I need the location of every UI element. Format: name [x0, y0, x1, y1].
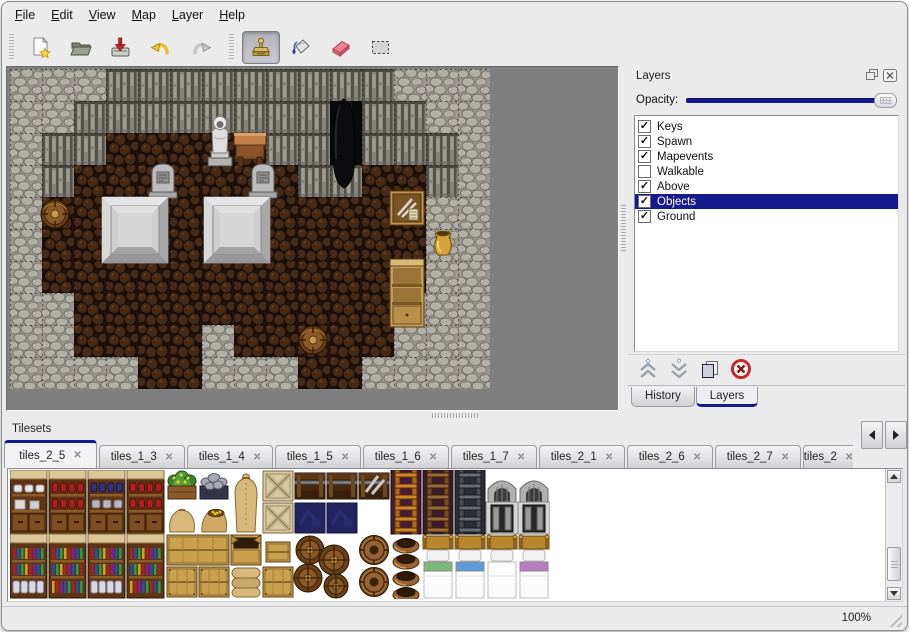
status-bar: 100% — [2, 606, 907, 631]
tileset-tile-navy-tile[interactable] — [327, 503, 357, 533]
layer-checkbox[interactable]: ✓ — [638, 150, 651, 163]
layers-panel: Layers Opacity: ✓Keys✓Spawn✓MapeventsWal… — [628, 66, 905, 411]
tilesets-panel-title: Tilesets — [12, 423, 51, 435]
tileset-tab-tiles_1_7[interactable]: tiles_1_7✕ — [451, 445, 537, 468]
map-object-shelf — [390, 259, 424, 327]
close-tab-icon[interactable]: ✕ — [73, 450, 81, 461]
tileset-canvas[interactable] — [10, 470, 550, 599]
layer-checkbox[interactable]: ✓ — [638, 210, 651, 223]
close-tab-icon[interactable]: ✕ — [693, 452, 701, 463]
layer-label: Objects — [657, 196, 696, 208]
layer-row-keys[interactable]: ✓Keys — [635, 119, 898, 134]
tileset-tab-label: tiles_1_3 — [111, 451, 157, 463]
tileset-tile-crate-tan[interactable] — [167, 567, 197, 597]
tilesets-panel: Tilesets tiles_2_5✕tiles_1_3✕tiles_1_4✕t… — [4, 419, 908, 606]
tileset-tile-sack-pile[interactable] — [232, 568, 260, 597]
rect-select-icon — [368, 35, 394, 61]
tileset-tab-tiles_1_3[interactable]: tiles_1_3✕ — [99, 445, 185, 468]
eraser-icon — [328, 35, 354, 61]
tileset-content[interactable] — [7, 468, 903, 602]
tileset-tile-shelf-bottle[interactable] — [127, 534, 164, 598]
app-window: FileEditViewMapLayerHelp — [1, 1, 908, 631]
tab-scroll-buttons — [859, 421, 907, 449]
tileset-tab-bar: tiles_2_5✕tiles_1_3✕tiles_1_4✕tiles_1_5✕… — [4, 440, 908, 468]
map-canvas[interactable] — [10, 69, 490, 389]
layers-panel-title: Layers — [636, 70, 671, 82]
map-object-tombstone — [149, 164, 177, 198]
close-tab-icon[interactable]: ✕ — [253, 452, 261, 463]
menu-layer[interactable]: Layer — [165, 8, 210, 22]
tileset-tile-shelf-bottle[interactable] — [10, 534, 47, 598]
triangle-right-icon — [893, 430, 899, 440]
layer-checkbox[interactable]: ✓ — [638, 120, 651, 133]
menu-file[interactable]: File — [8, 8, 42, 22]
float-panel-icon[interactable] — [865, 69, 879, 82]
map-viewport[interactable] — [6, 66, 619, 411]
tileset-tile-chest-dark[interactable] — [327, 473, 357, 499]
tileset-tile-bed[interactable] — [487, 535, 517, 598]
tileset-tab-tiles_2_5[interactable]: tiles_2_5✕ — [4, 440, 97, 468]
fill-tool-button[interactable] — [282, 31, 320, 64]
tileset-tile-crate-x[interactable] — [263, 503, 293, 533]
tileset-tile-planter[interactable] — [200, 474, 228, 500]
redo-icon — [188, 35, 214, 61]
tileset-tile-sack-tall[interactable] — [235, 474, 257, 532]
tileset-tab-tiles_1_4[interactable]: tiles_1_4✕ — [187, 445, 273, 468]
tileset-tab-label: tiles_1_7 — [463, 451, 509, 463]
scroll-tabs-right-button[interactable] — [885, 421, 907, 449]
toolbar-grip[interactable] — [229, 34, 234, 61]
tileset-tile-shelf-dish[interactable] — [49, 470, 86, 534]
tileset-tile-planter[interactable] — [168, 471, 196, 499]
tileset-tile-bed[interactable] — [519, 535, 549, 598]
tileset-tab-tiles_1_6[interactable]: tiles_1_6✕ — [363, 445, 449, 468]
tileset-tab-label: tiles_2_7 — [727, 451, 773, 463]
tileset-tile-shelf-bottle[interactable] — [49, 534, 86, 598]
layer-row-ground[interactable]: ✓Ground — [635, 209, 898, 224]
layer-checkbox[interactable] — [638, 165, 651, 178]
map-object-platform — [102, 197, 168, 263]
close-tab-icon[interactable]: ✕ — [781, 452, 789, 463]
delete-red-x-icon — [729, 357, 753, 381]
tileset-tab-label: tiles_2_1 — [551, 451, 597, 463]
tileset-tile-shelf-bottle[interactable] — [88, 534, 125, 598]
new-file-icon — [28, 35, 54, 61]
tileset-tab-label: tiles_1_5 — [287, 451, 333, 463]
chevron-double-down-icon — [667, 357, 691, 381]
layer-checkbox[interactable]: ✓ — [638, 195, 651, 208]
tileset-tile-chest-dark[interactable] — [359, 473, 389, 499]
undo-button[interactable] — [142, 31, 180, 64]
layer-row-spawn[interactable]: ✓Spawn — [635, 134, 898, 149]
dock-tab-layers[interactable]: Layers — [696, 387, 759, 407]
tileset-tile-sack-open[interactable] — [202, 509, 227, 532]
layer-row-above[interactable]: ✓Above — [635, 179, 898, 194]
duplicate-layer-button[interactable] — [698, 357, 722, 381]
resize-grip[interactable] — [885, 610, 902, 627]
tileset-tile-crate-x[interactable] — [263, 471, 293, 501]
tileset-tile-barrel-big[interactable] — [360, 536, 389, 565]
scroll-up-button[interactable] — [887, 470, 901, 483]
tileset-tab-tiles_2_7[interactable]: tiles_2_7✕ — [715, 445, 801, 468]
map-object-barrel — [299, 326, 327, 354]
tileset-tab-tiles_2[interactable]: tiles_2✕ — [803, 445, 853, 468]
toolbar-grip[interactable] — [9, 34, 14, 61]
tilesets-panel-titlebar: Tilesets — [4, 419, 908, 440]
layer-label: Ground — [657, 211, 695, 223]
map-object-barrel — [41, 200, 69, 228]
chevron-double-up-icon — [636, 357, 660, 381]
horizontal-splitter[interactable] — [2, 411, 907, 419]
tileset-tile-shelf-dish[interactable] — [127, 470, 164, 534]
tileset-tab-label: tiles_1_4 — [199, 451, 245, 463]
layer-checkbox[interactable]: ✓ — [638, 180, 651, 193]
toolbar — [2, 29, 907, 66]
zoom-level: 100% — [842, 612, 871, 624]
tileset-tile-crate-small[interactable] — [266, 542, 290, 562]
tileset-tile-shelf-dish[interactable] — [88, 470, 125, 534]
fill-bucket-icon — [288, 35, 314, 61]
layers-panel-titlebar: Layers — [628, 66, 905, 87]
close-tab-icon[interactable]: ✕ — [845, 452, 853, 463]
layer-row-mapevents[interactable]: ✓Mapevents — [635, 149, 898, 164]
tileset-tile-crate-long[interactable] — [167, 535, 229, 565]
undo-icon — [148, 35, 174, 61]
splitter-grip[interactable] — [621, 205, 626, 253]
opacity-row: Opacity: — [628, 90, 905, 110]
tileset-tile-arch[interactable] — [486, 481, 518, 534]
vertical-splitter[interactable] — [620, 66, 628, 411]
menu-edit[interactable]: Edit — [44, 8, 80, 22]
tileset-tab-label: tiles_2_6 — [639, 451, 685, 463]
layer-checkbox[interactable]: ✓ — [638, 135, 651, 148]
tileset-tile-crate-open[interactable] — [231, 535, 261, 565]
triangle-left-icon — [869, 430, 875, 440]
layer-label: Mapevents — [657, 151, 713, 163]
tileset-tile-crate-tan[interactable] — [263, 567, 293, 597]
dock-tab-history[interactable]: History — [631, 387, 695, 407]
tileset-tile-pots[interactable] — [393, 539, 419, 600]
splitter-grip[interactable] — [432, 413, 478, 418]
map-object-crate-tools — [390, 191, 424, 225]
duplicate-icon — [698, 357, 722, 381]
opacity-slider-track[interactable] — [686, 98, 897, 103]
tileset-tile-sack-big[interactable] — [170, 510, 195, 532]
tileset-vertical-scrollbar[interactable] — [885, 469, 902, 601]
raise-layer-button[interactable] — [636, 357, 660, 381]
side-dock-tabs: HistoryLayers — [628, 385, 905, 411]
stamp-tool-icon — [248, 35, 274, 61]
tileset-tile-arch[interactable] — [518, 481, 550, 534]
tileset-tile-navy-tile[interactable] — [295, 503, 325, 533]
tileset-tile-bed[interactable] — [423, 535, 453, 598]
tileset-tab-label: tiles_1_6 — [375, 451, 421, 463]
map-object-vase — [435, 231, 452, 255]
layer-label: Walkable — [657, 166, 704, 178]
map-object-platform — [204, 197, 270, 263]
close-panel-icon[interactable] — [883, 69, 897, 82]
stamp-tool-button[interactable] — [242, 31, 280, 64]
triangle-down-icon — [890, 591, 898, 596]
close-tab-icon[interactable]: ✕ — [165, 452, 173, 463]
triangle-up-icon — [890, 474, 898, 479]
tileset-tab-tiles_2_6[interactable]: tiles_2_6✕ — [627, 445, 713, 468]
layer-label: Spawn — [657, 136, 692, 148]
tileset-tab-tiles_1_5[interactable]: tiles_1_5✕ — [275, 445, 361, 468]
layer-list[interactable]: ✓Keys✓Spawn✓MapeventsWalkable✓Above✓Obje… — [634, 115, 899, 352]
menu-map[interactable]: Map — [125, 8, 163, 22]
tileset-tab-label: tiles_2_5 — [19, 450, 65, 462]
open-button[interactable] — [62, 31, 100, 64]
opacity-slider[interactable] — [686, 92, 897, 108]
scroll-down-button[interactable] — [887, 587, 901, 600]
close-tab-icon[interactable]: ✕ — [429, 452, 437, 463]
opacity-slider-handle[interactable] — [874, 93, 897, 108]
map-object-tombstone — [249, 164, 277, 198]
menu-help[interactable]: Help — [212, 8, 252, 22]
layer-buttons — [628, 354, 905, 382]
open-folder-icon — [68, 35, 94, 61]
select-tool-button[interactable] — [362, 31, 400, 64]
tileset-tile-ladder[interactable] — [391, 470, 421, 534]
close-tab-icon[interactable]: ✕ — [341, 452, 349, 463]
layer-row-walkable[interactable]: Walkable — [635, 164, 898, 179]
tileset-tile-chest-dark[interactable] — [295, 473, 325, 499]
tileset-tab-label: tiles_2 — [804, 451, 837, 463]
tileset-tile-ladder[interactable] — [423, 470, 453, 534]
tileset-tile-bed[interactable] — [455, 535, 485, 598]
tileset-tile-barrel-pile[interactable] — [294, 536, 349, 598]
eraser-tool-button[interactable] — [322, 31, 360, 64]
menu-bar: FileEditViewMapLayerHelp — [2, 2, 907, 28]
layer-label: Above — [657, 181, 690, 193]
opacity-label: Opacity: — [636, 94, 678, 106]
map-object-dark-figure — [333, 99, 355, 188]
close-tab-icon[interactable]: ✕ — [517, 452, 525, 463]
tileset-tile-ladder[interactable] — [455, 470, 485, 534]
tileset-tile-crate-tan[interactable] — [199, 567, 229, 597]
new-button[interactable] — [22, 31, 60, 64]
layer-row-objects[interactable]: ✓Objects — [635, 194, 898, 209]
close-tab-icon[interactable]: ✕ — [605, 452, 613, 463]
tileset-tile-shelf-dish[interactable] — [10, 470, 47, 534]
tileset-tab-tiles_2_1[interactable]: tiles_2_1✕ — [539, 445, 625, 468]
redo-button[interactable] — [182, 31, 220, 64]
lower-layer-button[interactable] — [667, 357, 691, 381]
scrollbar-thumb[interactable] — [887, 547, 901, 581]
menu-view[interactable]: View — [82, 8, 123, 22]
save-button[interactable] — [102, 31, 140, 64]
layer-label: Keys — [657, 121, 683, 133]
save-import-icon — [108, 35, 134, 61]
tileset-tile-barrel-big[interactable] — [360, 568, 389, 597]
delete-layer-button[interactable] — [729, 357, 753, 381]
scroll-tabs-left-button[interactable] — [861, 421, 883, 449]
